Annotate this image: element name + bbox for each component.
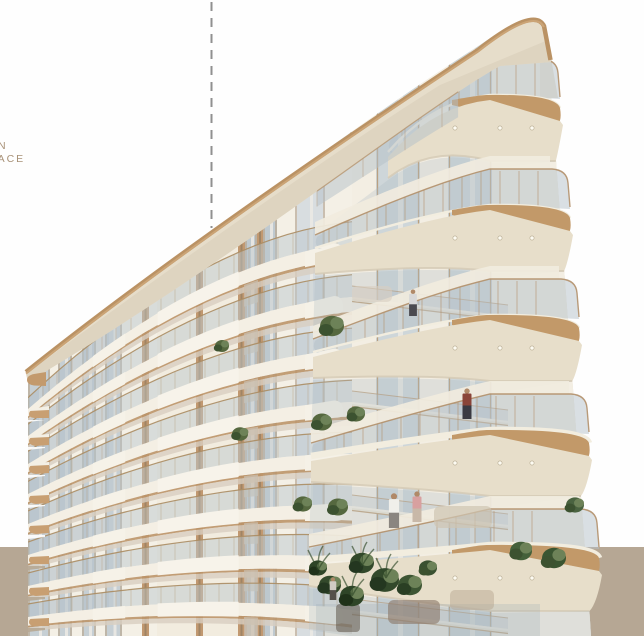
- svg-text:RACE: RACE: [0, 153, 25, 165]
- svg-text:N: N: [0, 140, 8, 152]
